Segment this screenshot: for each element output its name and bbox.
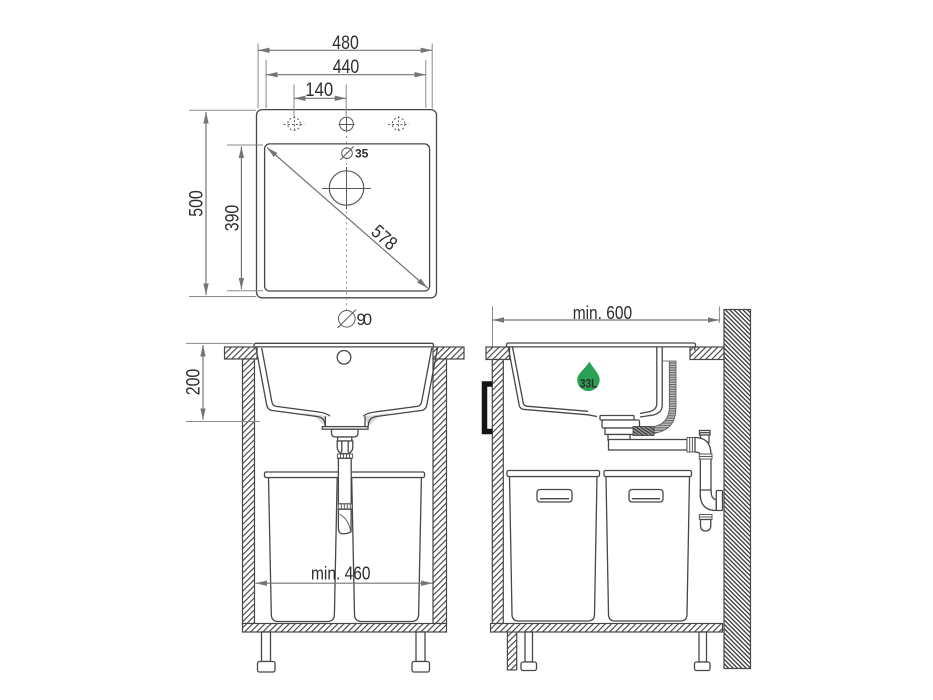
svg-text:90: 90: [357, 311, 373, 329]
svg-text:min. 600: min. 600: [573, 302, 633, 323]
svg-text:440: 440: [333, 57, 360, 78]
svg-text:200: 200: [184, 369, 205, 396]
svg-text:33L: 33L: [580, 377, 598, 391]
svg-text:min. 460: min. 460: [311, 563, 371, 584]
svg-text:480: 480: [332, 33, 359, 54]
svg-text:140: 140: [305, 80, 333, 101]
svg-text:35: 35: [355, 147, 369, 161]
svg-text:390: 390: [223, 205, 244, 232]
svg-text:500: 500: [187, 190, 208, 217]
